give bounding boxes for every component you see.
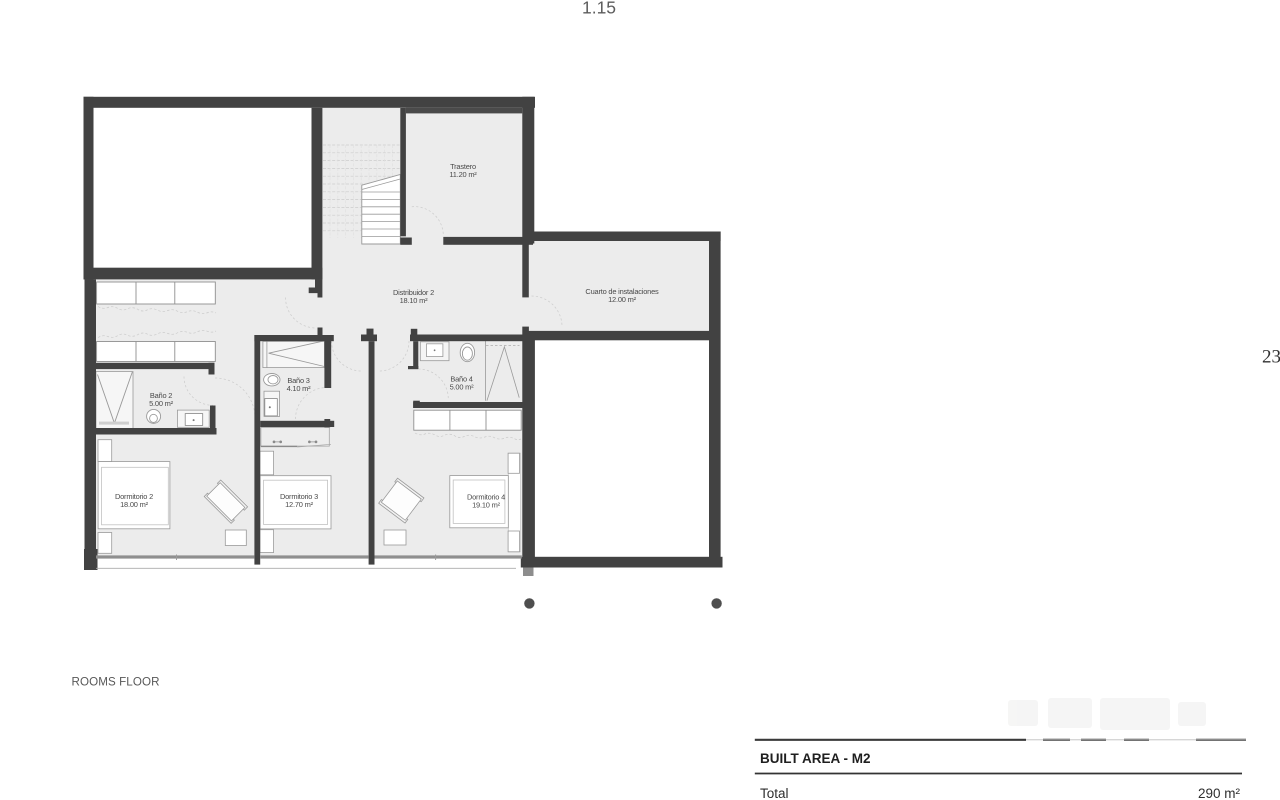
svg-text:18.10 m²: 18.10 m² [400,296,428,305]
svg-text:11.20 m²: 11.20 m² [449,170,477,179]
svg-text:Total: Total [760,786,789,800]
svg-text:4.10 m²: 4.10 m² [287,384,312,393]
svg-text:12.00 m²: 12.00 m² [608,295,636,304]
svg-text:23: 23 [1262,347,1280,368]
svg-text:18.00 m²: 18.00 m² [120,500,148,509]
svg-text:19.10 m²: 19.10 m² [472,501,500,510]
svg-text:BUILT AREA - M2: BUILT AREA - M2 [760,751,871,766]
svg-text:ROOMS FLOOR: ROOMS FLOOR [72,676,160,689]
svg-text:290 m²: 290 m² [1198,786,1241,800]
svg-text:5.00 m²: 5.00 m² [450,383,475,392]
svg-text:12.70 m²: 12.70 m² [285,500,313,509]
svg-text:5.00 m²: 5.00 m² [149,399,174,408]
svg-text:1.15: 1.15 [582,0,616,17]
